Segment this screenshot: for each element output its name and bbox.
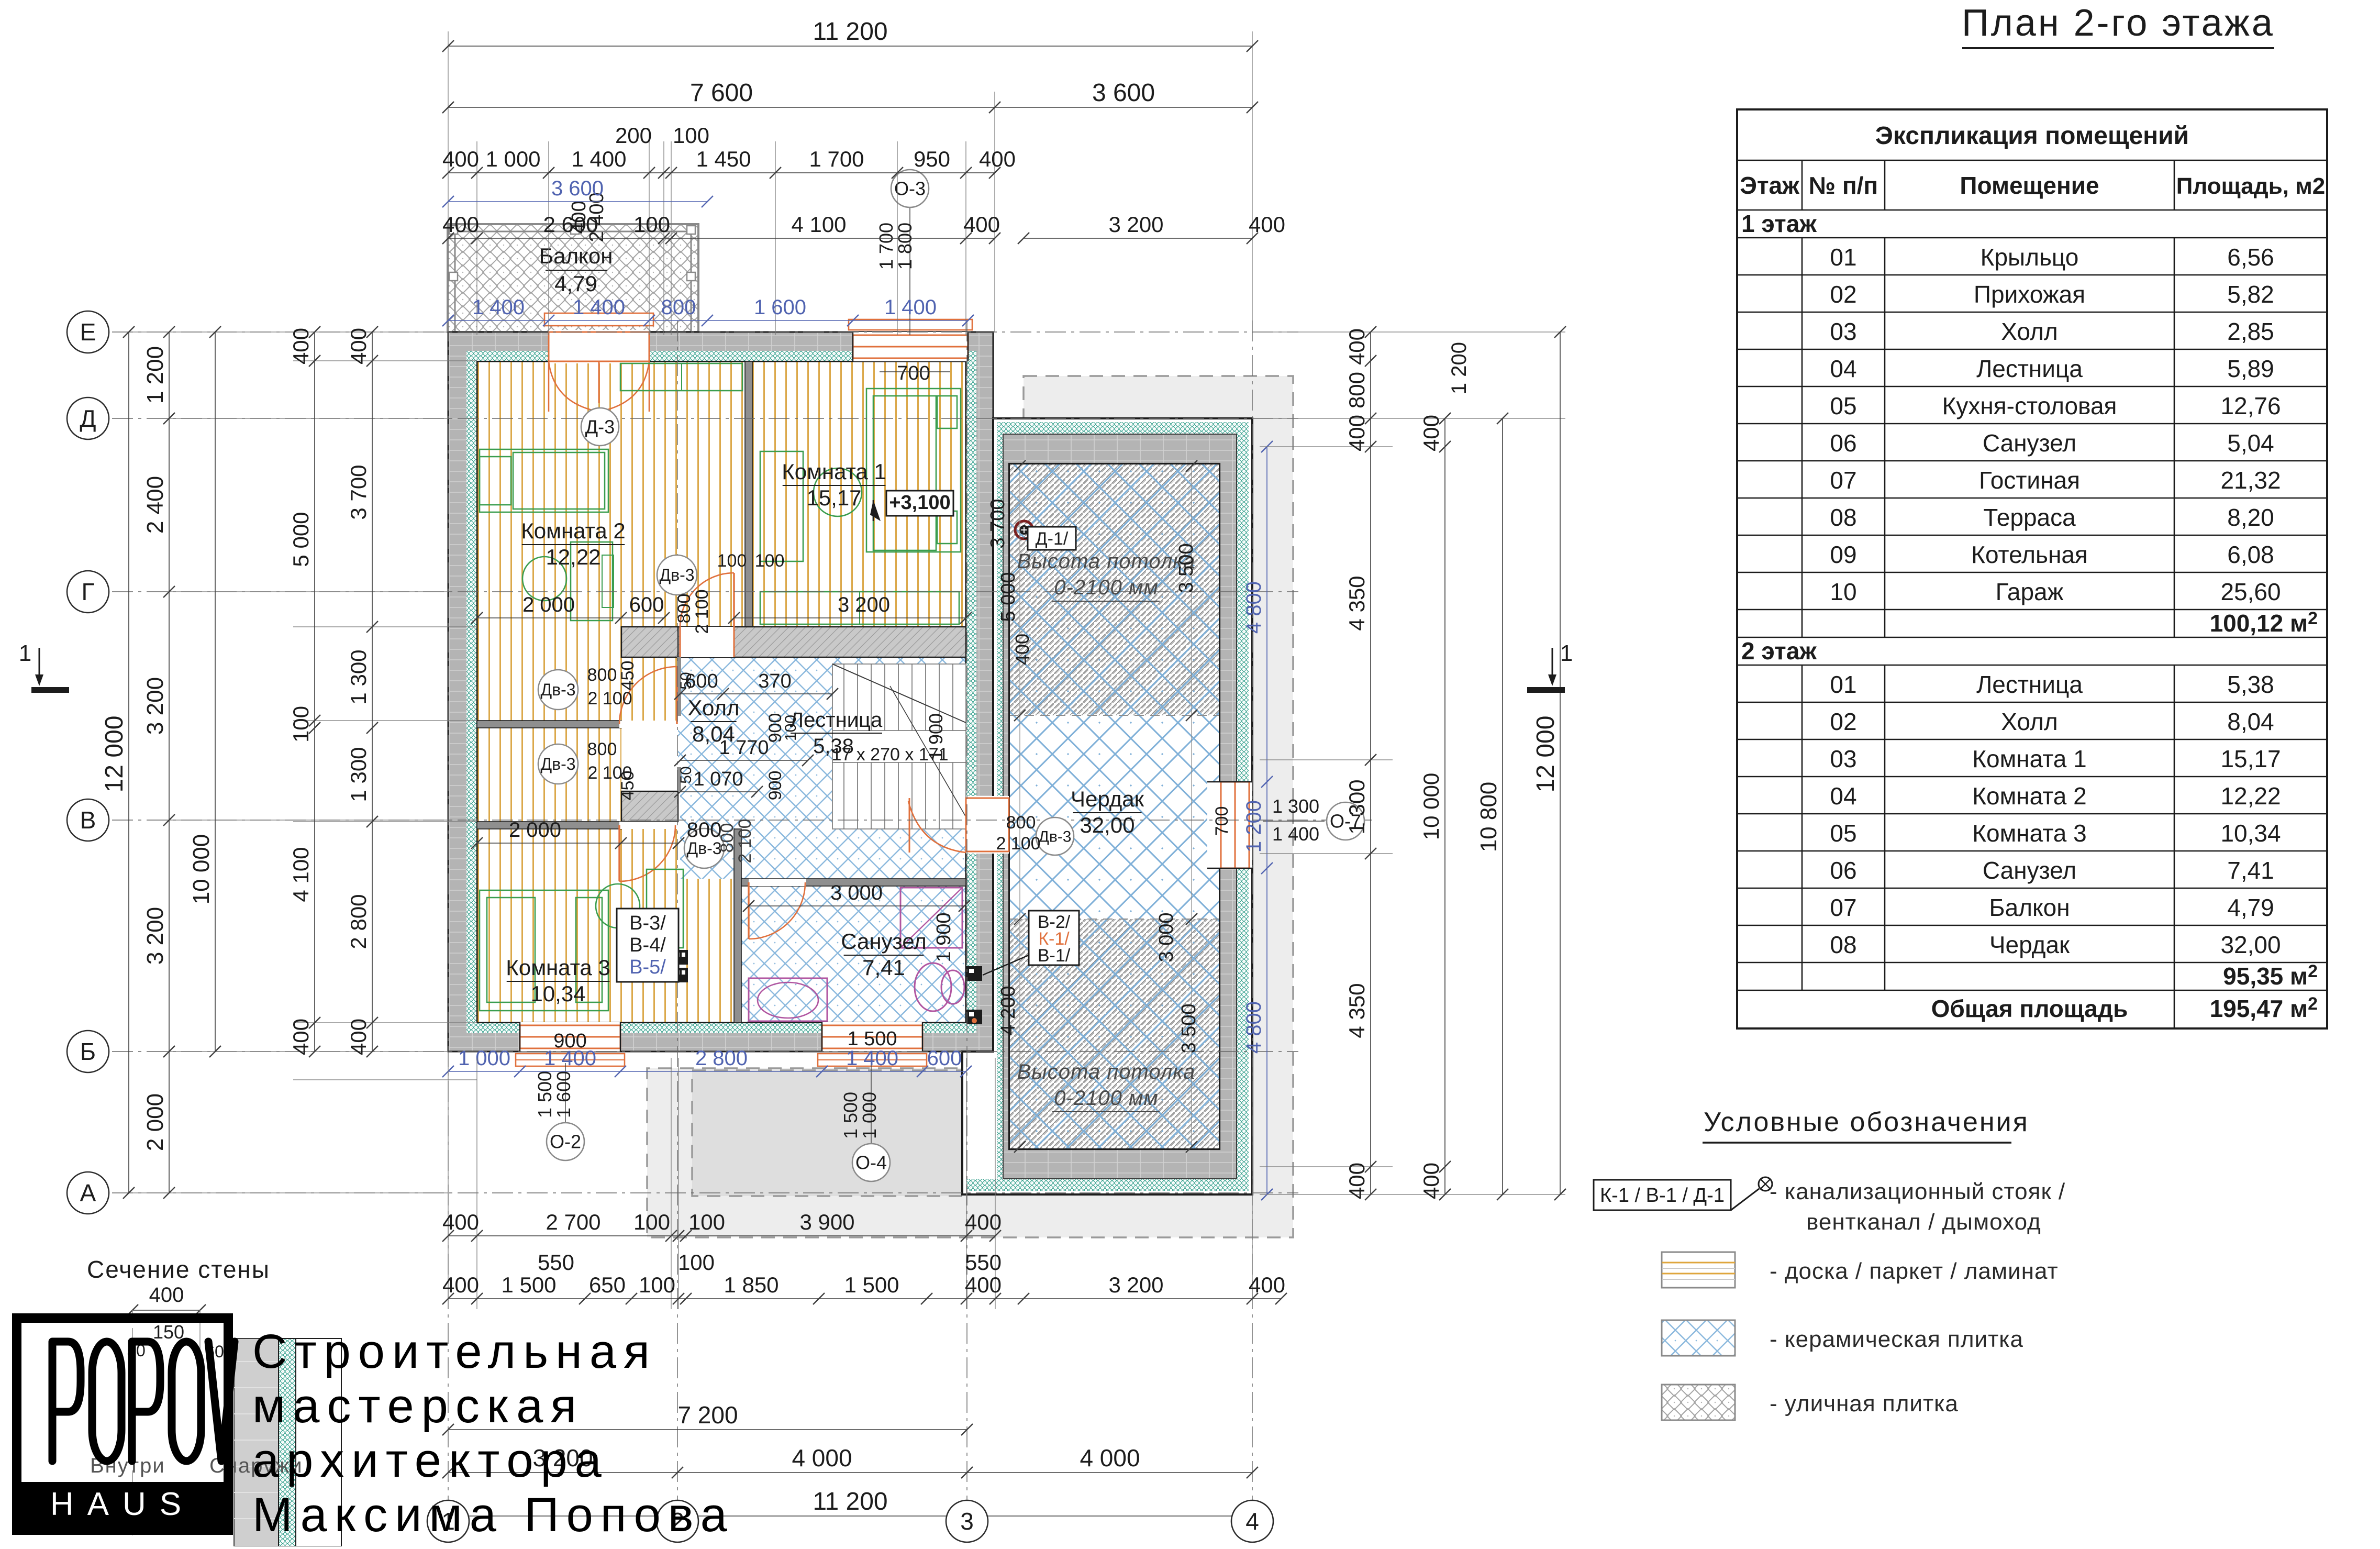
svg-text:0-2100 мм: 0-2100 мм xyxy=(1054,576,1159,599)
svg-text:2 100: 2 100 xyxy=(735,818,755,863)
svg-text:400: 400 xyxy=(965,1273,1002,1297)
svg-text:400: 400 xyxy=(979,147,1016,171)
svg-text:1 400: 1 400 xyxy=(571,147,626,171)
svg-text:100: 100 xyxy=(633,1210,670,1234)
svg-text:3 900: 3 900 xyxy=(799,1210,854,1234)
svg-text:3 200: 3 200 xyxy=(1108,212,1163,237)
svg-text:15,17: 15,17 xyxy=(806,485,861,510)
svg-text:Комната 3: Комната 3 xyxy=(1972,820,2086,847)
svg-text:1 300: 1 300 xyxy=(346,649,371,704)
svg-text:04: 04 xyxy=(1830,355,1856,382)
svg-text:370: 370 xyxy=(758,670,791,692)
svg-text:100: 100 xyxy=(755,551,785,571)
svg-text:12,22: 12,22 xyxy=(546,545,600,569)
svg-text:100: 100 xyxy=(673,123,709,148)
svg-text:Санузел: Санузел xyxy=(841,929,927,954)
svg-text:3 700: 3 700 xyxy=(346,464,371,519)
svg-text:HAUS: HAUS xyxy=(50,1486,195,1522)
svg-text:1 000: 1 000 xyxy=(458,1047,510,1070)
svg-text:1 700: 1 700 xyxy=(809,147,864,171)
svg-text:2 700: 2 700 xyxy=(546,1210,600,1234)
svg-text:400: 400 xyxy=(1249,212,1285,237)
svg-text:4 350: 4 350 xyxy=(1344,576,1369,630)
svg-text:100: 100 xyxy=(678,1250,715,1275)
svg-text:10 800: 10 800 xyxy=(1476,782,1502,853)
svg-text:3 500: 3 500 xyxy=(1175,543,1197,593)
svg-text:3 000: 3 000 xyxy=(1155,912,1177,962)
svg-text:10 000: 10 000 xyxy=(188,834,214,905)
svg-text:Балкон: Балкон xyxy=(539,244,613,268)
svg-text:1 900: 1 900 xyxy=(933,912,955,962)
svg-text:В: В xyxy=(80,806,96,834)
svg-text:Дв-3: Дв-3 xyxy=(540,755,575,773)
svg-text:3 200: 3 200 xyxy=(1108,1273,1163,1297)
svg-text:Холл: Холл xyxy=(2001,318,2058,345)
svg-text:Комната 2: Комната 2 xyxy=(521,518,625,543)
svg-text:05: 05 xyxy=(1830,820,1856,847)
svg-text:02: 02 xyxy=(1830,281,1856,308)
svg-text:25,60: 25,60 xyxy=(2220,578,2281,605)
svg-text:400: 400 xyxy=(965,1210,1002,1234)
svg-text:100: 100 xyxy=(288,706,313,743)
svg-text:195,47 м2: 195,47 м2 xyxy=(2210,994,2318,1022)
svg-text:200: 200 xyxy=(615,123,652,148)
svg-text:400: 400 xyxy=(442,1210,479,1234)
svg-text:Лестница: Лестница xyxy=(1976,671,2083,698)
svg-text:32,00: 32,00 xyxy=(1080,813,1135,837)
svg-text:3 000: 3 000 xyxy=(830,881,883,904)
svg-text:1 200: 1 200 xyxy=(142,346,168,404)
svg-text:2 800: 2 800 xyxy=(695,1047,748,1070)
svg-text:3 600: 3 600 xyxy=(1092,79,1155,107)
svg-text:1 500: 1 500 xyxy=(501,1273,556,1297)
svg-text:07: 07 xyxy=(1830,467,1856,494)
svg-text:550: 550 xyxy=(965,1250,1002,1275)
svg-text:вентканал / дымоход: вентканал / дымоход xyxy=(1806,1209,2041,1235)
svg-text:1 700: 1 700 xyxy=(875,223,897,270)
svg-text:450: 450 xyxy=(618,771,638,801)
svg-text:1 этаж: 1 этаж xyxy=(1741,210,1817,237)
svg-text:900: 900 xyxy=(765,771,785,801)
svg-text:100: 100 xyxy=(688,1210,725,1234)
svg-text:Д-3: Д-3 xyxy=(585,416,615,438)
svg-text:Гараж: Гараж xyxy=(1996,578,2064,605)
svg-text:2 этаж: 2 этаж xyxy=(1741,637,1817,665)
svg-text:1: 1 xyxy=(19,640,31,666)
svg-text:Комната 1: Комната 1 xyxy=(1972,745,2086,772)
svg-text:12 000: 12 000 xyxy=(1532,716,1560,793)
svg-text:4 800: 4 800 xyxy=(1242,581,1265,634)
svg-text:01: 01 xyxy=(1830,244,1856,271)
svg-text:Помещение: Помещение xyxy=(1960,172,2099,199)
svg-text:4 100: 4 100 xyxy=(288,847,313,902)
svg-text:1 500: 1 500 xyxy=(840,1092,861,1139)
svg-text:1 400: 1 400 xyxy=(573,296,625,319)
svg-text:2 000: 2 000 xyxy=(509,818,561,842)
svg-text:1 500: 1 500 xyxy=(534,1071,555,1118)
svg-text:2 400: 2 400 xyxy=(142,476,168,534)
svg-text:- доска / паркет / ламинат: - доска / паркет / ламинат xyxy=(1770,1258,2059,1284)
svg-text:700: 700 xyxy=(897,362,930,384)
svg-text:32,00: 32,00 xyxy=(2220,931,2281,958)
svg-text:1 400: 1 400 xyxy=(884,296,937,319)
svg-text:Д: Д xyxy=(80,405,96,432)
svg-text:Дв-3: Дв-3 xyxy=(686,839,721,858)
svg-text:600: 600 xyxy=(927,1047,962,1070)
svg-text:09: 09 xyxy=(1830,541,1856,568)
svg-text:Максима Попова: Максима Попова xyxy=(252,1488,735,1542)
svg-text:4,79: 4,79 xyxy=(2227,894,2274,921)
svg-text:Чердак: Чердак xyxy=(1989,931,2070,958)
svg-text:02: 02 xyxy=(1830,708,1856,735)
svg-text:03: 03 xyxy=(1830,745,1856,772)
svg-text:Санузел: Санузел xyxy=(1983,429,2076,457)
svg-text:1 850: 1 850 xyxy=(724,1273,778,1297)
svg-text:Дв-3: Дв-3 xyxy=(540,680,575,699)
svg-text:800: 800 xyxy=(674,594,694,624)
svg-text:01: 01 xyxy=(1830,671,1856,698)
svg-text:1 400: 1 400 xyxy=(846,1047,898,1070)
svg-text:12,76: 12,76 xyxy=(2220,392,2281,419)
svg-text:1 300: 1 300 xyxy=(346,747,371,802)
svg-text:2,85: 2,85 xyxy=(2227,318,2274,345)
svg-text:Холл: Холл xyxy=(2001,708,2058,735)
svg-text:6,56: 6,56 xyxy=(2227,244,2274,271)
svg-text:08: 08 xyxy=(1830,931,1856,958)
svg-text:В-1/: В-1/ xyxy=(1038,946,1071,966)
svg-text:03: 03 xyxy=(1830,318,1856,345)
svg-text:1 450: 1 450 xyxy=(696,147,751,171)
svg-text:Дв-3: Дв-3 xyxy=(1039,828,1072,846)
svg-text:Терраса: Терраса xyxy=(1983,504,2076,531)
svg-text:5,04: 5,04 xyxy=(2227,429,2274,457)
svg-text:7 600: 7 600 xyxy=(690,79,753,107)
svg-text:10: 10 xyxy=(1830,578,1856,605)
svg-text:2 000: 2 000 xyxy=(142,1093,168,1151)
svg-text:- керамическая плитка: - керамическая плитка xyxy=(1770,1326,2023,1352)
svg-text:Г: Г xyxy=(82,578,95,605)
svg-text:5,38: 5,38 xyxy=(2227,671,2274,698)
svg-text:11 200: 11 200 xyxy=(813,18,887,46)
svg-text:Д-1/: Д-1/ xyxy=(1036,529,1069,549)
svg-text:2 000: 2 000 xyxy=(522,593,575,616)
svg-text:1 300: 1 300 xyxy=(1344,779,1369,834)
svg-text:10,34: 10,34 xyxy=(530,981,585,1006)
svg-text:12 000: 12 000 xyxy=(101,716,128,793)
svg-text:3 500: 3 500 xyxy=(1178,1003,1200,1053)
svg-text:Общая площадь: Общая площадь xyxy=(1931,995,2128,1022)
svg-text:400: 400 xyxy=(442,147,479,171)
svg-text:11 200: 11 200 xyxy=(813,1488,887,1515)
svg-text:Крыльцо: Крыльцо xyxy=(1981,244,2079,271)
svg-text:8,04: 8,04 xyxy=(2227,708,2274,735)
svg-text:Строительная: Строительная xyxy=(252,1325,657,1378)
svg-text:В-4/: В-4/ xyxy=(629,934,666,956)
svg-text:700: 700 xyxy=(1212,806,1232,836)
svg-text:400: 400 xyxy=(1249,1273,1285,1297)
svg-text:100: 100 xyxy=(717,551,747,571)
svg-text:400: 400 xyxy=(288,328,313,364)
svg-text:400: 400 xyxy=(442,212,479,237)
svg-text:800: 800 xyxy=(661,296,696,319)
svg-text:08: 08 xyxy=(1830,504,1856,531)
svg-text:3 600: 3 600 xyxy=(551,177,604,200)
svg-text:400: 400 xyxy=(346,1019,371,1055)
svg-text:В-3/: В-3/ xyxy=(629,912,666,934)
svg-text:400: 400 xyxy=(1419,415,1443,451)
svg-text:400: 400 xyxy=(1344,328,1369,365)
svg-text:1 300: 1 300 xyxy=(1272,795,1319,817)
svg-text:О-4: О-4 xyxy=(855,1152,887,1174)
svg-text:мастерская: мастерская xyxy=(252,1379,584,1433)
svg-text:2 100: 2 100 xyxy=(996,834,1040,854)
svg-text:4 350: 4 350 xyxy=(1344,983,1369,1038)
svg-text:1 900: 1 900 xyxy=(925,713,947,760)
svg-text:95,35 м2: 95,35 м2 xyxy=(2223,961,2318,990)
svg-text:0-2100 мм: 0-2100 мм xyxy=(1054,1087,1159,1110)
svg-text:3 200: 3 200 xyxy=(142,907,168,965)
svg-text:100: 100 xyxy=(782,715,799,741)
svg-text:Комната 2: Комната 2 xyxy=(1972,782,2086,810)
svg-text:В-5/: В-5/ xyxy=(629,956,666,978)
svg-text:Кухня-столовая: Кухня-столовая xyxy=(1942,392,2117,419)
svg-text:Е: Е xyxy=(80,318,96,346)
svg-text:4: 4 xyxy=(1245,1508,1259,1535)
svg-text:2 100: 2 100 xyxy=(587,689,632,709)
svg-text:1: 1 xyxy=(1560,640,1573,666)
svg-text:10 000: 10 000 xyxy=(1419,773,1443,840)
svg-text:Комната 1: Комната 1 xyxy=(782,459,886,484)
svg-text:Условные обозначения: Условные обозначения xyxy=(1704,1107,2029,1137)
svg-text:1 000: 1 000 xyxy=(485,147,540,171)
svg-text:400: 400 xyxy=(1011,634,1033,665)
svg-text:Высота потолка: Высота потолка xyxy=(1017,550,1196,573)
svg-text:4 800: 4 800 xyxy=(1242,1001,1265,1054)
svg-text:800: 800 xyxy=(587,665,617,685)
svg-text:4 000: 4 000 xyxy=(792,1444,852,1471)
svg-text:К-1 / В-1 / Д-1: К-1 / В-1 / Д-1 xyxy=(1600,1185,1725,1207)
svg-text:50: 50 xyxy=(677,766,695,783)
svg-text:800: 800 xyxy=(587,739,617,759)
svg-text:6,08: 6,08 xyxy=(2227,541,2274,568)
svg-text:5,82: 5,82 xyxy=(2227,281,2274,308)
svg-text:04: 04 xyxy=(1830,782,1856,810)
svg-text:Экспликация помещений: Экспликация помещений xyxy=(1875,122,2189,150)
svg-text:Б: Б xyxy=(80,1038,96,1065)
svg-text:Котельная: Котельная xyxy=(1971,541,2088,568)
svg-text:3 700: 3 700 xyxy=(987,499,1009,548)
svg-text:Балкон: Балкон xyxy=(1989,894,2070,921)
svg-text:150: 150 xyxy=(153,1321,184,1343)
svg-text:1 600: 1 600 xyxy=(553,1071,574,1118)
svg-text:1 200: 1 200 xyxy=(1242,800,1265,853)
svg-text:800: 800 xyxy=(1344,372,1369,408)
svg-text:1 070: 1 070 xyxy=(693,768,743,790)
svg-text:800: 800 xyxy=(1006,813,1036,833)
svg-text:5 000: 5 000 xyxy=(997,572,1019,622)
svg-text:950: 950 xyxy=(914,147,950,171)
svg-text:50: 50 xyxy=(677,672,695,689)
svg-text:550: 550 xyxy=(538,1250,574,1275)
svg-text:Комната 3: Комната 3 xyxy=(506,955,610,980)
svg-text:Холл: Холл xyxy=(688,695,740,720)
svg-text:1 770: 1 770 xyxy=(719,737,769,759)
svg-text:7,41: 7,41 xyxy=(862,955,905,980)
svg-text:5,89: 5,89 xyxy=(2227,355,2274,382)
svg-text:7,41: 7,41 xyxy=(2227,857,2274,884)
svg-text:15,17: 15,17 xyxy=(2220,745,2281,772)
svg-text:100: 100 xyxy=(633,212,670,237)
svg-text:21,32: 21,32 xyxy=(2220,467,2281,494)
svg-text:4 200: 4 200 xyxy=(997,986,1019,1035)
svg-text:4 000: 4 000 xyxy=(1080,1444,1140,1471)
svg-text:- канализационный стояк /: - канализационный стояк / xyxy=(1770,1179,2065,1204)
svg-text:А: А xyxy=(80,1179,96,1207)
svg-text:4,79: 4,79 xyxy=(554,271,597,296)
svg-text:8,20: 8,20 xyxy=(2227,504,2274,531)
svg-text:2 800: 2 800 xyxy=(346,894,371,949)
svg-text:07: 07 xyxy=(1830,894,1856,921)
svg-text:План 2-го этажа: План 2-го этажа xyxy=(1962,2,2275,44)
svg-text:06: 06 xyxy=(1830,857,1856,884)
svg-text:1 400: 1 400 xyxy=(472,296,525,319)
svg-text:400: 400 xyxy=(963,212,1000,237)
svg-text:4 100: 4 100 xyxy=(791,212,846,237)
svg-text:Чердак: Чердак xyxy=(1071,787,1144,811)
svg-text:+3,100: +3,100 xyxy=(889,492,950,514)
svg-text:Лестница: Лестница xyxy=(790,709,883,732)
svg-text:№ п/п: № п/п xyxy=(1809,172,1878,199)
svg-text:2 100: 2 100 xyxy=(692,589,712,634)
svg-text:100: 100 xyxy=(639,1273,675,1297)
svg-text:5 000: 5 000 xyxy=(288,512,313,567)
svg-text:1 200: 1 200 xyxy=(1448,342,1471,394)
svg-text:Гостиная: Гостиная xyxy=(1979,467,2080,494)
svg-text:1 400: 1 400 xyxy=(1272,823,1319,845)
svg-text:600: 600 xyxy=(629,593,664,616)
svg-text:1 000: 1 000 xyxy=(859,1092,880,1139)
svg-text:- уличная плитка: - уличная плитка xyxy=(1770,1391,1959,1417)
svg-text:400: 400 xyxy=(442,1273,479,1297)
svg-text:7 200: 7 200 xyxy=(677,1401,738,1429)
svg-text:Дв-3: Дв-3 xyxy=(659,566,694,584)
svg-text:800: 800 xyxy=(687,818,722,842)
svg-text:Этаж: Этаж xyxy=(1740,172,1799,199)
svg-text:2 600: 2 600 xyxy=(543,212,598,237)
svg-text:Сечение стены: Сечение стены xyxy=(87,1256,270,1283)
svg-text:06: 06 xyxy=(1830,429,1856,457)
svg-text:Лестница: Лестница xyxy=(1976,355,2083,382)
svg-text:1 400: 1 400 xyxy=(544,1047,596,1070)
svg-text:Санузел: Санузел xyxy=(1983,857,2076,884)
svg-text:Прихожая: Прихожая xyxy=(1974,281,2085,308)
svg-text:450: 450 xyxy=(618,661,638,691)
svg-text:10,34: 10,34 xyxy=(2220,820,2281,847)
svg-text:3 200: 3 200 xyxy=(838,593,890,616)
svg-text:3 200: 3 200 xyxy=(142,677,168,735)
svg-text:1 500: 1 500 xyxy=(844,1273,899,1297)
svg-text:Высота потолка: Высота потолка xyxy=(1017,1060,1196,1083)
svg-text:400: 400 xyxy=(1344,1163,1369,1199)
svg-text:О-2: О-2 xyxy=(550,1131,581,1153)
svg-text:400: 400 xyxy=(149,1284,184,1307)
svg-text:100,12 м2: 100,12 м2 xyxy=(2210,608,2318,637)
svg-text:650: 650 xyxy=(589,1273,626,1297)
svg-text:О-3: О-3 xyxy=(894,178,926,200)
svg-text:архитектора: архитектора xyxy=(252,1434,609,1487)
svg-text:05: 05 xyxy=(1830,392,1856,419)
svg-text:400: 400 xyxy=(1419,1163,1443,1199)
svg-text:Площадь, м2: Площадь, м2 xyxy=(2176,173,2325,199)
svg-text:400: 400 xyxy=(288,1019,313,1055)
svg-text:1 600: 1 600 xyxy=(754,296,806,319)
svg-text:400: 400 xyxy=(1344,415,1369,451)
svg-text:400: 400 xyxy=(346,328,371,364)
svg-text:3: 3 xyxy=(960,1508,974,1535)
svg-text:12,22: 12,22 xyxy=(2220,782,2281,810)
